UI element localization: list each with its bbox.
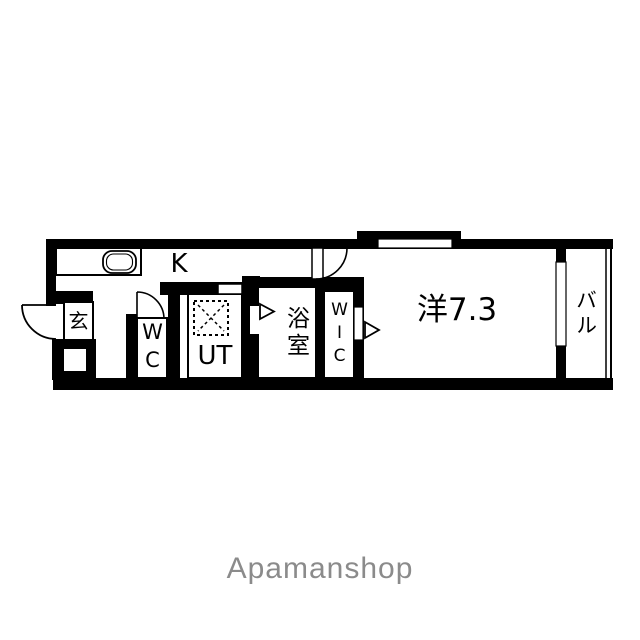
entrance-door-arc-icon: [22, 305, 56, 339]
bathroom-door-opening: [250, 306, 260, 334]
bathroom-label: 浴室: [277, 292, 313, 374]
top-window: [378, 239, 452, 248]
floor-plan-drawing: [0, 0, 640, 640]
wic-door-arrow-icon: [365, 322, 379, 338]
entrance-step-cutout: [64, 349, 86, 371]
floor-plan: K 玄 WC UT 浴室 WIC 洋7.3 バル Apamanshop: [0, 0, 640, 640]
utility-label: UT: [188, 336, 242, 376]
wall-balcony-top-stub: [556, 248, 566, 263]
western-room-label: 洋7.3: [378, 289, 536, 331]
wall-wc-left: [126, 314, 137, 379]
wic-label: WIC: [324, 293, 354, 375]
watermark-text: Apamanshop: [0, 552, 640, 586]
toilet-label: WC: [137, 319, 167, 377]
wic-door-leaf: [354, 307, 363, 340]
wall-left-upper: [46, 239, 56, 306]
wall-bottom: [53, 378, 613, 390]
balcony-sliding-door: [556, 262, 566, 346]
wall-wc-ut: [168, 282, 180, 379]
room-door-leaf: [312, 248, 323, 279]
toilet-door-arc-icon: [137, 292, 164, 319]
utility-door-panel: [218, 284, 242, 294]
balcony-label: バル: [569, 283, 601, 345]
wall-balcony-bottom-stub: [556, 346, 566, 379]
kitchen-label: K: [164, 249, 194, 279]
entrance-label: 玄: [64, 303, 93, 339]
